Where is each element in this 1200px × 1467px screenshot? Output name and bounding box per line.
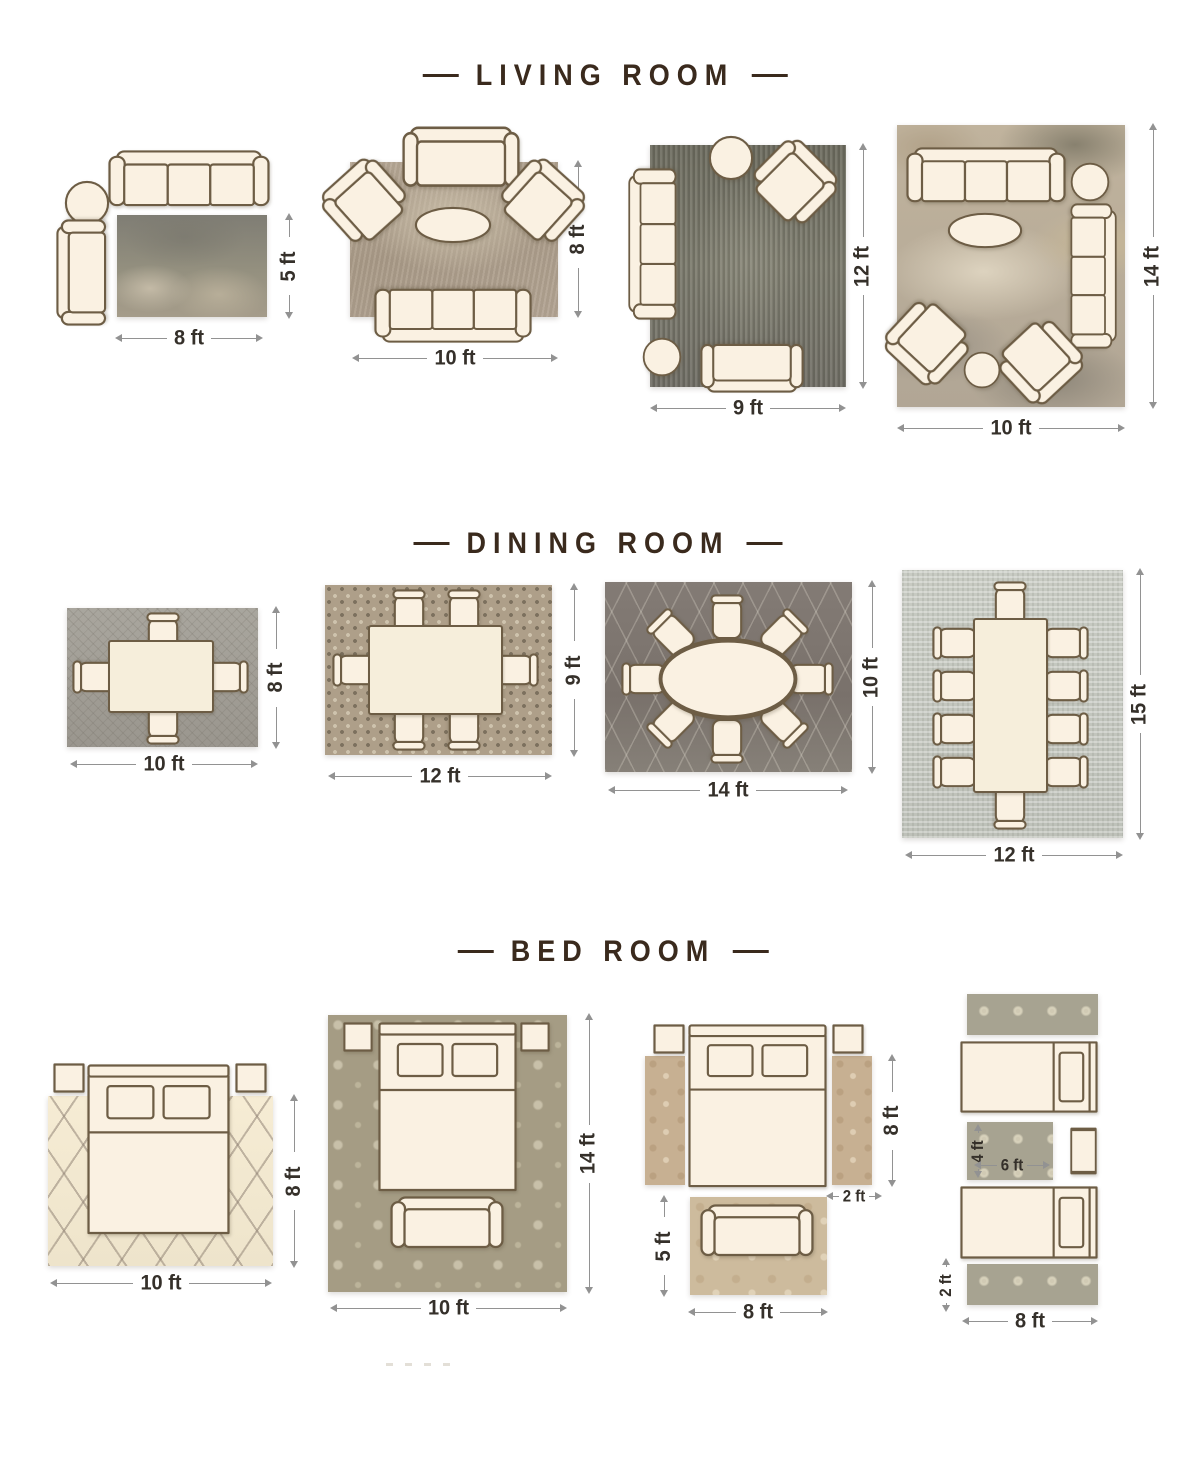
height-dimension: 8 ft [282, 1094, 306, 1268]
dining-chair-icon [710, 718, 744, 764]
height-dimension-label: 14 ft [577, 1133, 602, 1174]
runner-rug-left [645, 1056, 685, 1185]
height-dimension: 14 ft [1141, 123, 1165, 409]
width-dimension-label: 8 ft [167, 326, 211, 351]
runner-length-dimension-label: 8 ft [1008, 1309, 1052, 1334]
sofa-icon [108, 150, 270, 208]
title-dash-icon [751, 74, 787, 77]
sofa-icon [906, 147, 1066, 204]
title-dash-icon [458, 950, 494, 953]
dining-chair-icon [710, 594, 744, 640]
width-dimension-label: 9 ft [726, 396, 770, 421]
bench-icon [390, 1196, 504, 1249]
width-dimension-label: 14 ft [700, 778, 755, 803]
living-rug-8x5 [117, 215, 267, 317]
bed-icon [87, 1064, 230, 1235]
width-dimension: 14 ft [608, 779, 848, 801]
foot-rug-width-dimension-label: 8 ft [736, 1300, 780, 1325]
section-title-text: DINING ROOM [467, 526, 730, 560]
width-dimension-label: 10 ft [983, 416, 1038, 441]
nightstand-icon [235, 1063, 267, 1093]
width-dimension: 10 ft [897, 417, 1125, 439]
dining-chair-icon [932, 669, 978, 703]
bed-icon [378, 1022, 517, 1192]
height-dimension: 8 ft [264, 606, 288, 749]
runner-length-dimension: 8 ft [962, 1310, 1098, 1332]
height-dimension-label: 5 ft [277, 251, 302, 281]
width-dimension: 12 ft [905, 844, 1123, 866]
width-dimension: 10 ft [330, 1297, 567, 1319]
foot-rug-height-dimension-label: 5 ft [652, 1231, 677, 1261]
nightstand-icon [520, 1022, 550, 1052]
width-dimension: 9 ft [650, 397, 846, 419]
runner-width-dimension: 2 ft [936, 1258, 956, 1312]
sofa-icon [374, 287, 532, 343]
width-dimension-label: 12 ft [412, 764, 467, 789]
width-dimension-label: 12 ft [986, 843, 1041, 868]
width-dimension: 10 ft [50, 1272, 272, 1294]
width-dimension-label: 10 ft [136, 752, 191, 777]
runner-rug-right [832, 1056, 872, 1185]
runner-rug-top [967, 994, 1098, 1035]
dining-table [368, 625, 503, 715]
accent-rug-width-dimension-label: 6 ft [997, 1156, 1028, 1174]
dining-chair-icon [1043, 626, 1089, 660]
title-dash-icon [423, 74, 459, 77]
dining-chair-icon [932, 712, 978, 746]
height-dimension: 14 ft [577, 1013, 601, 1294]
twin-bed-icon [960, 1041, 1098, 1113]
dining-chair-icon [1043, 669, 1089, 703]
bench-icon [700, 1204, 814, 1257]
height-dimension-label: 10 ft [860, 656, 885, 697]
width-dimension-label: 10 ft [421, 1296, 476, 1321]
nightstand-icon [343, 1022, 373, 1052]
nightstand-icon [53, 1063, 85, 1093]
foot-rug-width-dimension: 8 ft [688, 1301, 828, 1323]
foot-rug-height-dimension: 5 ft [652, 1195, 676, 1297]
faint-marks [386, 1363, 450, 1366]
oval-coffee-table-icon [414, 206, 492, 244]
sofa-icon [1069, 203, 1117, 349]
dining-chair-icon [932, 755, 978, 789]
dining-chair-icon [932, 626, 978, 660]
section-title-text: BED ROOM [511, 934, 716, 968]
dining-chair-icon [1043, 755, 1089, 789]
section-title-text: LIVING ROOM [476, 58, 735, 92]
runner-width-dimension-label: 2 ft [839, 1187, 870, 1205]
accent-rug-width-dimension: 6 ft [974, 1157, 1050, 1173]
runner-height-dimension: 8 ft [880, 1054, 904, 1187]
title-dash-icon [414, 542, 450, 545]
height-dimension-label: 14 ft [1141, 245, 1166, 286]
nightstand-icon [832, 1024, 864, 1054]
width-dimension: 8 ft [115, 327, 263, 349]
runner-rug-bottom [967, 1264, 1098, 1305]
height-dimension: 5 ft [277, 213, 301, 319]
runner-width-dimension: 2 ft [826, 1188, 882, 1204]
width-dimension: 10 ft [352, 347, 558, 369]
nightstand-icon [653, 1024, 685, 1054]
rug-size-guide: LIVING ROOM 5 ft 8 ft 8 ft 10 ft 12 ft 9… [0, 0, 1200, 1467]
title-dash-icon [732, 950, 768, 953]
loveseat-icon [56, 219, 107, 326]
width-dimension-label: 10 ft [427, 346, 482, 371]
height-dimension-label: 8 ft [566, 224, 591, 254]
oval-dining-table-icon [657, 636, 799, 722]
height-dimension: 15 ft [1128, 568, 1152, 840]
bed-room-title: BED ROOM [458, 936, 769, 967]
loveseat-icon [402, 126, 520, 188]
dining-room-title: DINING ROOM [414, 528, 783, 559]
dining-chair-icon [1043, 712, 1089, 746]
height-dimension: 12 ft [851, 143, 875, 389]
runner-height-dimension-label: 8 ft [880, 1106, 905, 1136]
round-side-table-icon [642, 337, 682, 377]
height-dimension: 10 ft [860, 580, 884, 774]
height-dimension-label: 8 ft [264, 663, 289, 693]
height-dimension-label: 12 ft [851, 245, 876, 286]
sofa-icon [628, 168, 678, 320]
round-side-table-icon [963, 351, 1001, 389]
width-dimension: 10 ft [70, 753, 258, 775]
round-side-table-icon [1070, 162, 1110, 202]
loveseat-icon [700, 343, 804, 393]
round-side-table-icon [708, 135, 754, 181]
width-dimension-label: 10 ft [133, 1271, 188, 1296]
living-room-title: LIVING ROOM [423, 60, 788, 91]
dining-table [108, 640, 214, 713]
nightstand-icon [1070, 1127, 1097, 1175]
title-dash-icon [747, 542, 783, 545]
height-dimension-label: 8 ft [282, 1166, 307, 1196]
runner-width-dimension-label: 2 ft [937, 1274, 955, 1297]
height-dimension: 9 ft [562, 583, 586, 757]
height-dimension-label: 15 ft [1128, 683, 1153, 724]
width-dimension: 12 ft [328, 765, 552, 787]
height-dimension-label: 9 ft [562, 655, 587, 685]
twin-bed-icon [960, 1186, 1098, 1259]
dining-table [973, 618, 1048, 793]
bed-icon [688, 1024, 827, 1188]
oval-coffee-table-icon [947, 212, 1023, 249]
